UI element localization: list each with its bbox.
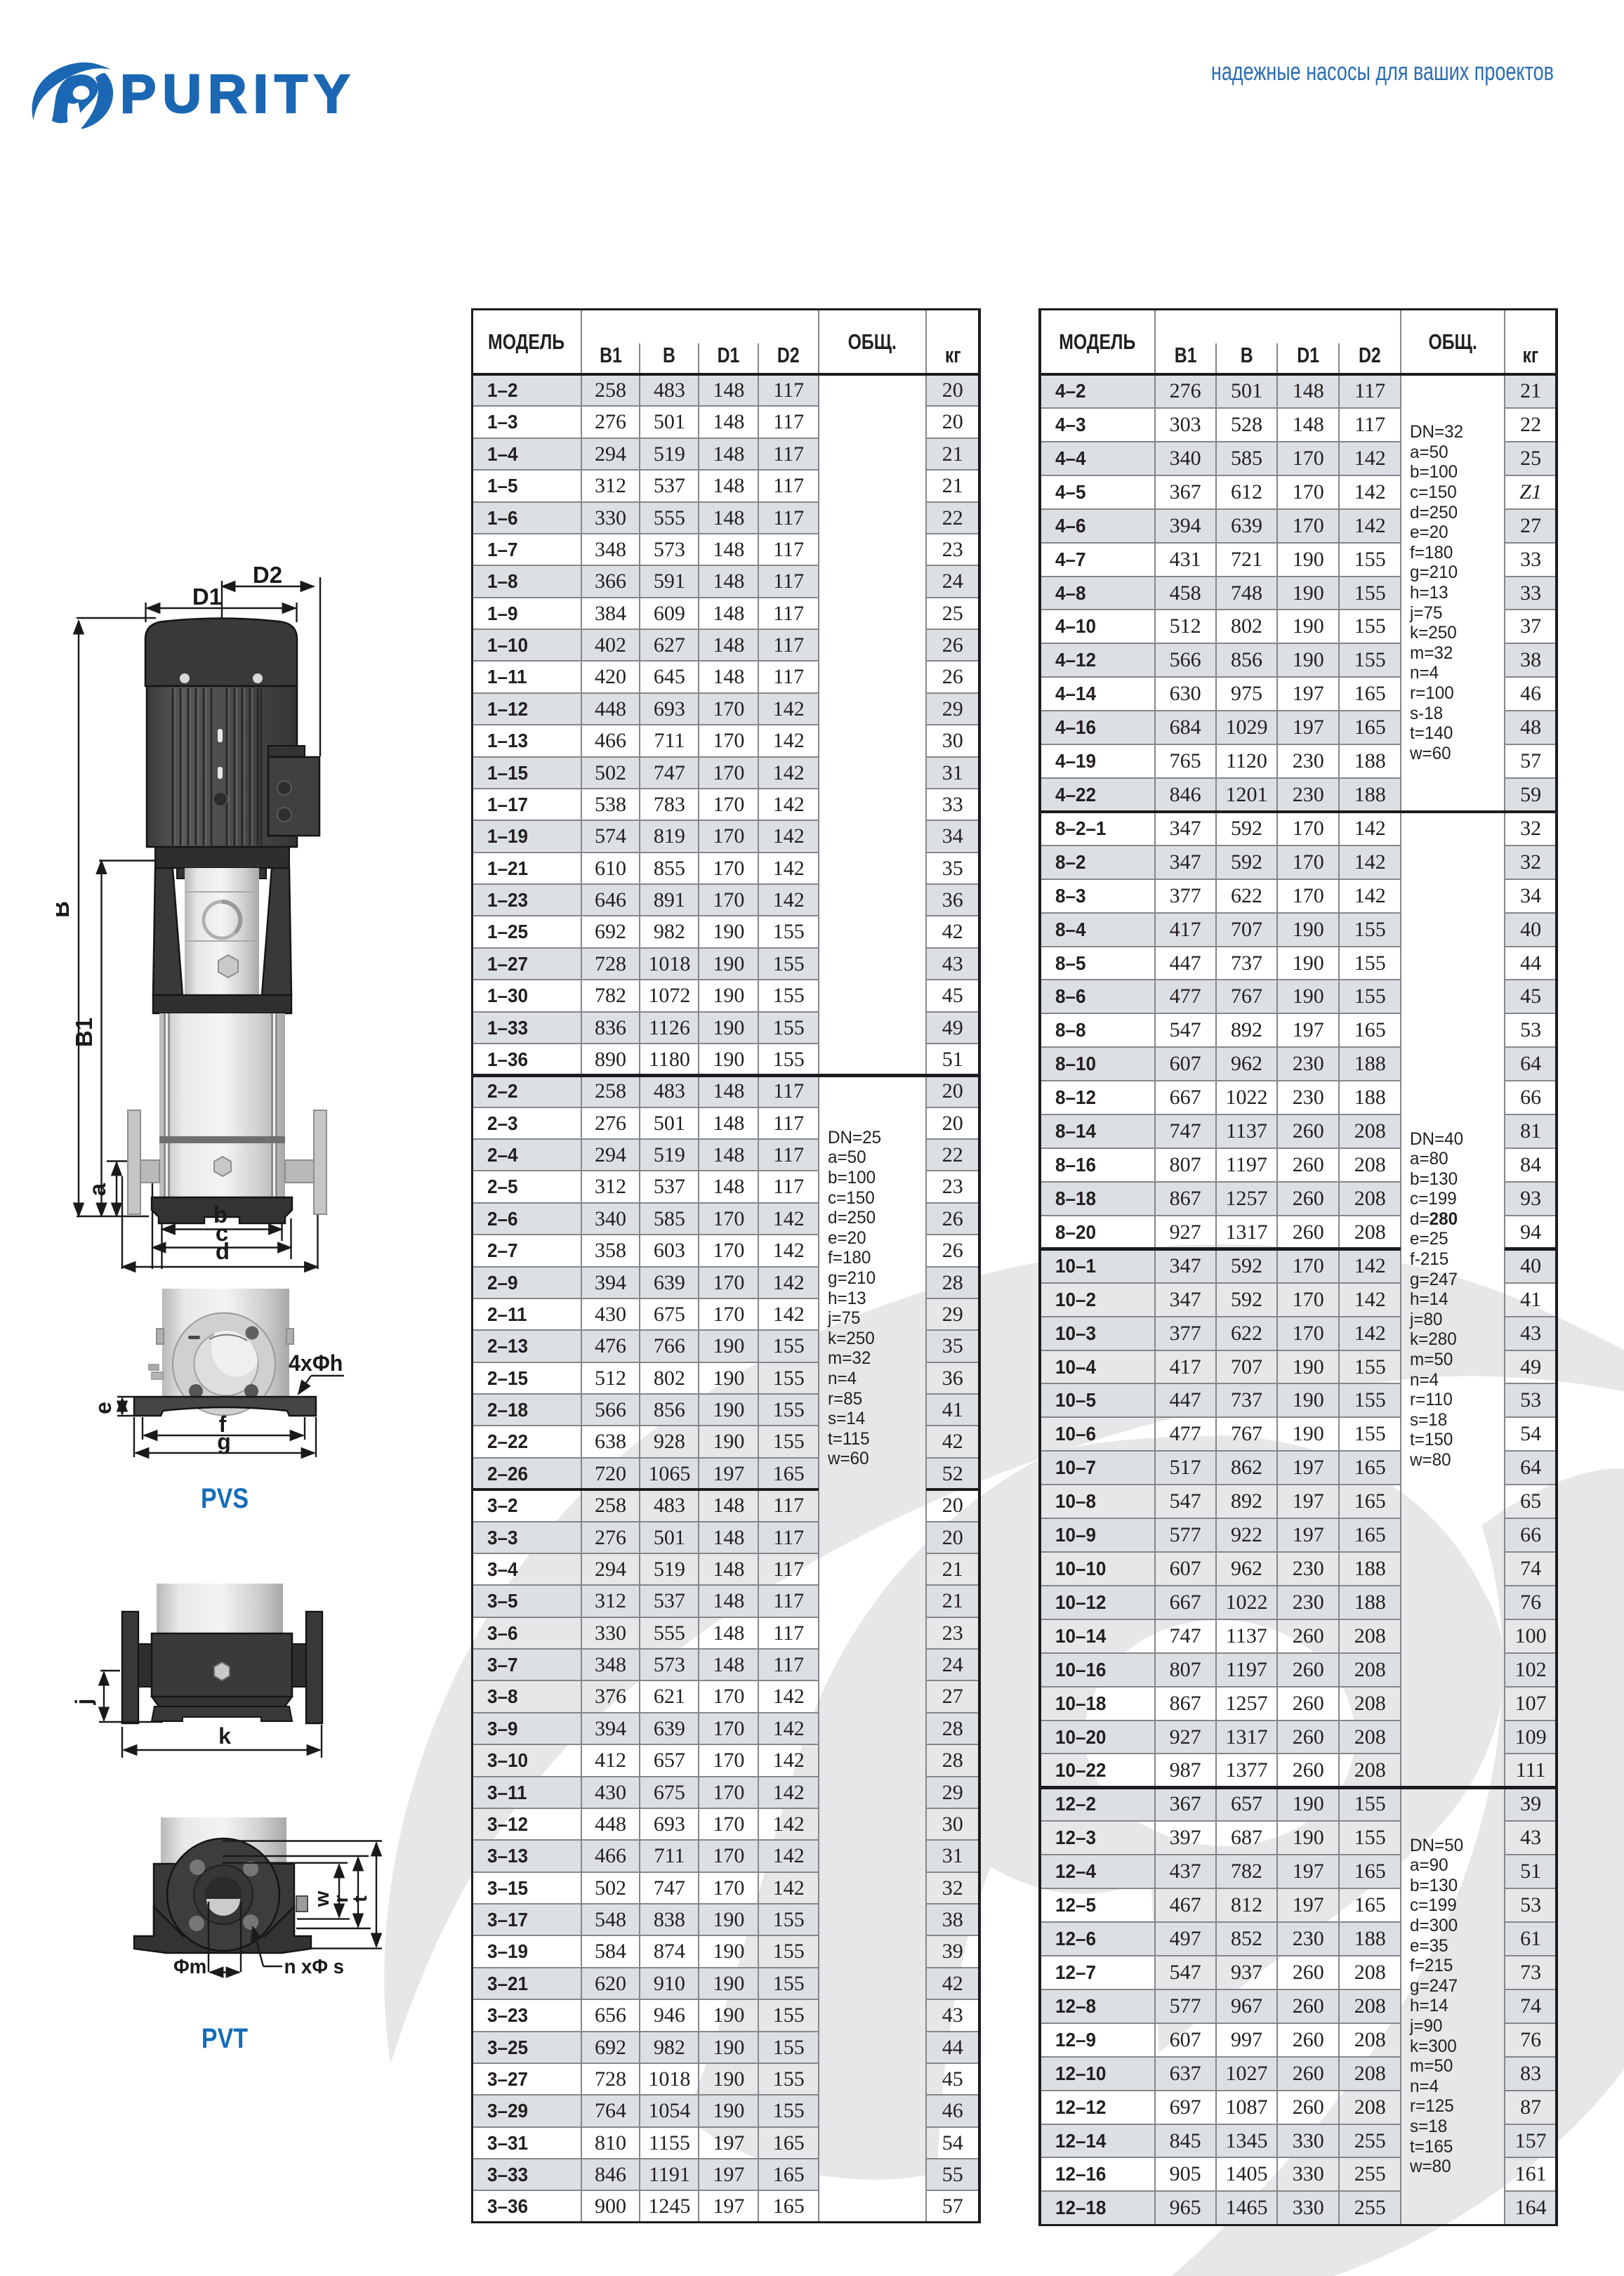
svg-text:j: j — [71, 1699, 96, 1706]
svg-text:D1: D1 — [192, 584, 222, 610]
svg-text:g: g — [217, 1429, 231, 1454]
svg-text:a: a — [84, 1183, 110, 1196]
svg-text:4xΦh: 4xΦh — [289, 1350, 343, 1376]
svg-text:t: t — [349, 1895, 371, 1902]
svg-text:B1: B1 — [71, 1018, 97, 1047]
svg-text:n xΦ s: n xΦ s — [284, 1954, 344, 1978]
svg-text:d: d — [216, 1238, 230, 1264]
svg-text:B: B — [56, 901, 74, 918]
svg-text:Φm: Φm — [173, 1954, 206, 1978]
svg-text:e: e — [98, 1402, 116, 1414]
svg-text:k: k — [218, 1723, 231, 1749]
svg-text:D2: D2 — [253, 562, 282, 588]
